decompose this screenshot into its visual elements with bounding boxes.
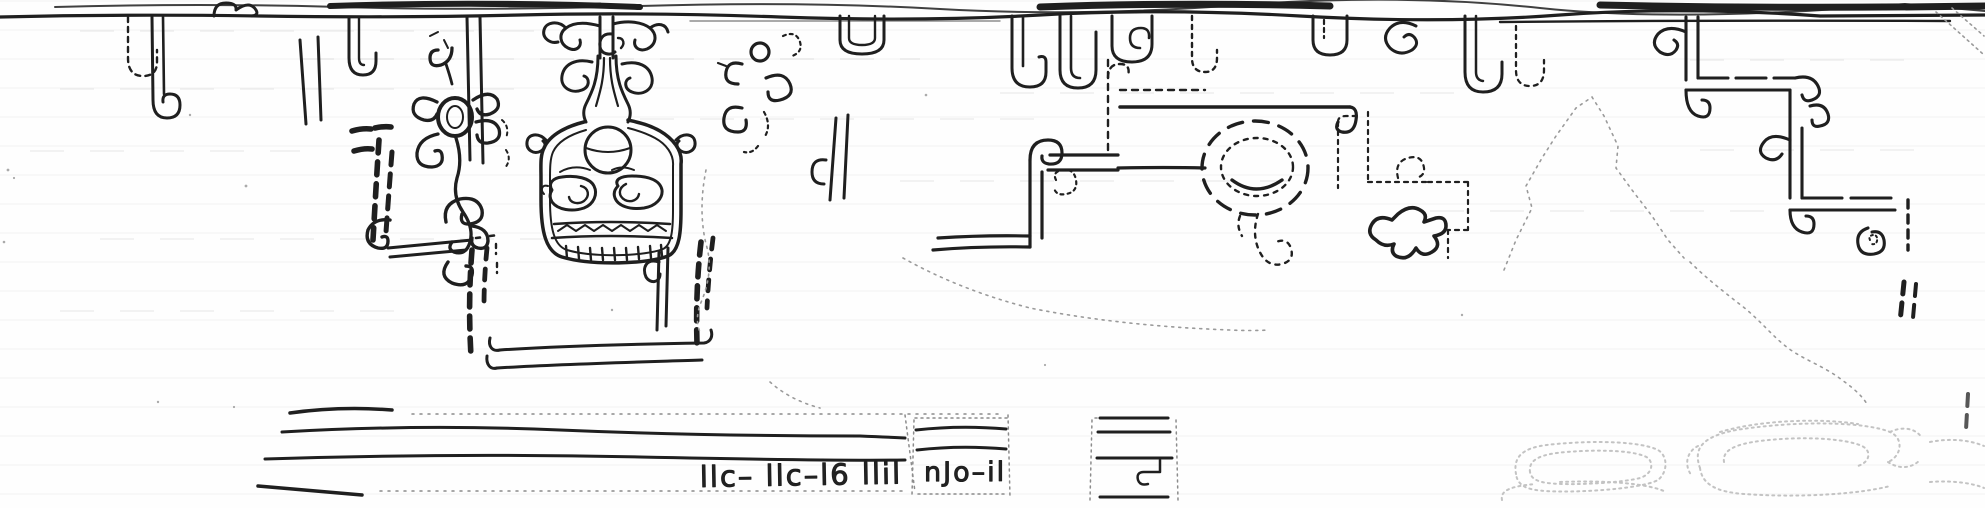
arm-hook-assembly — [367, 198, 498, 284]
ghost-scroll-outlines — [1502, 421, 1984, 500]
mask-right-eye — [614, 176, 662, 209]
dotted-step-meander — [1338, 112, 1468, 258]
enclosure-base-lines — [487, 330, 712, 368]
scan-streaks — [30, 31, 1940, 311]
border-hooks — [128, 3, 1544, 163]
stepped-scroll-motif — [933, 60, 1356, 250]
mask-trunk — [584, 56, 631, 122]
mask-right-ear-curl — [676, 135, 695, 153]
mask-forehead-disc — [585, 127, 631, 173]
baseline-block-short — [1090, 418, 1178, 500]
frieze-canvas: llc– llc–l6 llil nJo–il — [0, 0, 1985, 508]
jl-hook-pair — [1012, 16, 1096, 88]
dotted-j-hook-right — [1516, 26, 1544, 86]
top-torn-edge — [55, 0, 1985, 15]
animal-scroll-motif — [1370, 208, 1446, 258]
dashed-mini-spiral — [1054, 170, 1076, 195]
handwritten-note: nJo–il — [924, 457, 1006, 488]
small-scroll-cluster — [718, 34, 801, 152]
u-pocket-hook — [840, 16, 884, 54]
j-hook-right — [1465, 16, 1502, 92]
glyph-row-note: llc– llc–l6 llil — [700, 456, 903, 494]
baseline-block-main: llc– llc–l6 llil — [258, 409, 1000, 495]
dotted-j-hook — [1192, 16, 1217, 72]
bold-dash-columns — [352, 127, 713, 356]
spiral-loop-hook — [1112, 16, 1152, 62]
u-hook-dashes — [1313, 16, 1347, 55]
baseline-band: llc– llc–l6 llil nJo–il — [258, 409, 1178, 500]
stepped-fret-right — [1654, 17, 1908, 254]
dashed-spiral-motif — [1202, 121, 1308, 265]
c-spiral — [1386, 22, 1417, 53]
mask-headdress — [544, 17, 668, 93]
mask-face-motif — [527, 17, 695, 263]
stray-bold-dashes — [1900, 282, 1968, 430]
baseline-block-note: nJo–il — [912, 415, 1010, 498]
scanned-frieze-drawing: llc– llc–l6 llil nJo–il — [0, 0, 1985, 508]
j-hook — [349, 17, 376, 75]
mask-left-ear-curl — [527, 135, 546, 153]
mask-mouth-band — [552, 222, 672, 238]
slanted-line-pair — [812, 115, 848, 200]
hook-glyph — [1138, 460, 1160, 485]
mountain-tear-line — [697, 8, 1984, 408]
double-line-mark — [300, 37, 321, 124]
